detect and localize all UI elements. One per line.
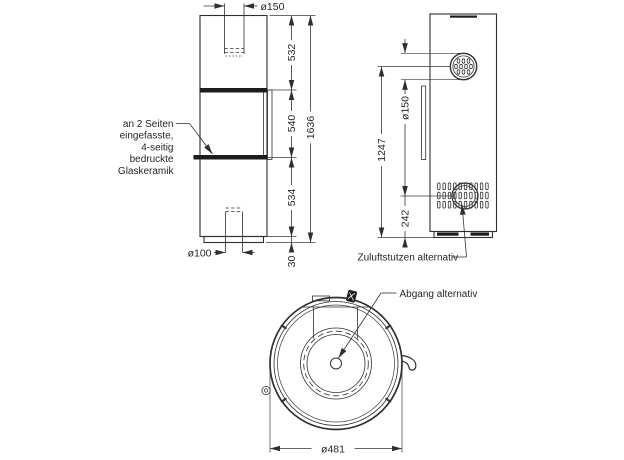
dim-total-height-label: 1636 [305,116,317,140]
hinge-knob [262,386,270,394]
dim-total-height: 1636 [305,16,318,243]
dim-air-inlet-height-label: 242 [400,210,412,228]
side-glass-edge-strip [422,86,426,160]
glass-note-leader [190,124,213,155]
glass-note-line2: eingefasste, [120,131,174,142]
glass-top-frame-band [200,88,268,93]
outlet-note-label: Abgang alternativ [400,289,478,300]
technical-drawing-canvas: ø150 532 540 534 30 [0,0,624,460]
air-inlet-note-label: Zuluftstutzen alternativ [358,253,459,264]
outlet-note: Abgang alternativ [339,289,478,358]
dim-air-pipe-diameter-label: ø100 [188,248,212,260]
dim-lower-section: 534 [286,158,299,237]
front-air-pipe-hidden [226,208,243,253]
chamber-ring-outer [301,328,372,399]
dim-flue-center-height-label: 1247 [376,138,388,162]
dim-flue-diameter-side-label: ø150 [400,96,412,120]
dim-glass-section: 540 [286,90,299,158]
top-view: Abgang alternativ ø481 [262,289,477,456]
chamber-ring-middle [304,331,369,396]
chamber-ring-inner [307,335,365,393]
glass-note-line3: 4-seitig [141,142,173,153]
flue-outlet-slots [455,59,473,74]
dim-flue-diameter-front-label: ø150 [261,1,285,13]
top-body-outer-ring [270,298,402,430]
side-top-slot [450,16,477,18]
dim-lower-section-label: 534 [286,189,298,207]
glass-note: an 2 Seiten eingefasste, 4-seitig bedruc… [118,119,213,177]
dim-top-section-label: 532 [286,44,298,62]
glass-note-line1: an 2 Seiten [123,119,174,130]
dim-glass-section-label: 540 [286,115,298,133]
side-base-foot-left [437,233,459,236]
dim-flue-center-height: 1247 [376,67,389,238]
dim-top-section: 532 [286,16,299,91]
glass-bottom-frame-band [194,155,268,160]
top-body-inner-ring [274,302,398,426]
dim-air-inlet-height: 242 [400,124,412,247]
ventilation-grille [438,183,489,208]
flue-outlet-center [331,358,342,369]
front-flue-pipe-hidden [225,4,245,57]
dim-air-pipe-diameter: ø100 [188,248,255,260]
top-body-liner-ring [278,305,395,422]
technical-drawing-page: ø150 532 540 534 30 [0,0,624,460]
dim-body-diameter-label: ø481 [321,443,345,455]
rim-ticks [281,325,391,402]
glass-note-line4: bedruckte [130,154,174,165]
dim-base-height-label: 30 [286,256,298,268]
glass-note-line5: Glaskeramik [118,166,175,177]
front-base-plinth [204,237,264,243]
door-handle [402,356,416,371]
dim-base-height: 30 [286,227,298,267]
side-flue-outlet [450,53,476,79]
air-inlet-note-leader [462,205,467,258]
side-view: ø150 242 1247 Zuluftstutzen alternativ [358,14,497,264]
side-base-foot-right [471,233,490,236]
glass-side-wrap-strip [268,90,273,160]
front-view: ø150 532 540 534 30 [118,1,317,268]
